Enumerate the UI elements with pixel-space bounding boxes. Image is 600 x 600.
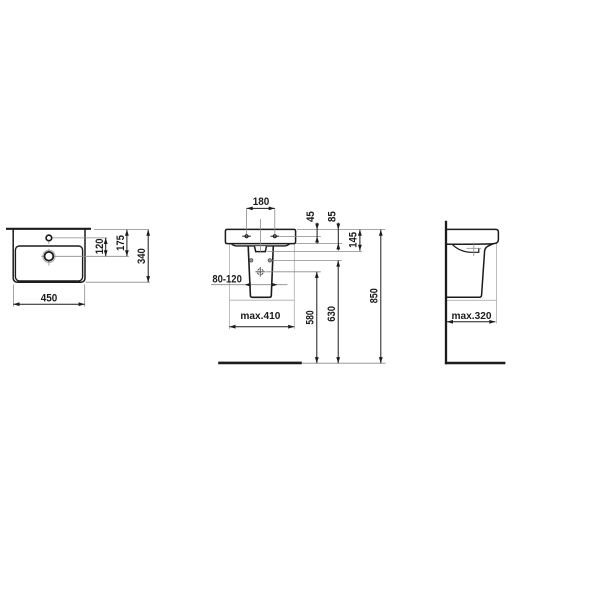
svg-text:180: 180 [253,196,270,208]
svg-text:120: 120 [94,239,106,255]
svg-text:80-120: 80-120 [212,274,242,286]
svg-text:max.320: max.320 [452,311,492,322]
svg-text:580: 580 [304,310,316,324]
svg-text:175: 175 [115,235,127,251]
svg-text:450: 450 [41,292,58,304]
svg-text:145: 145 [348,232,360,248]
svg-text:340: 340 [136,248,148,264]
svg-text:45: 45 [305,211,317,222]
svg-text:850: 850 [368,288,380,303]
svg-text:max.410: max.410 [240,311,280,322]
svg-text:85: 85 [327,211,339,222]
svg-text:630: 630 [326,306,338,322]
